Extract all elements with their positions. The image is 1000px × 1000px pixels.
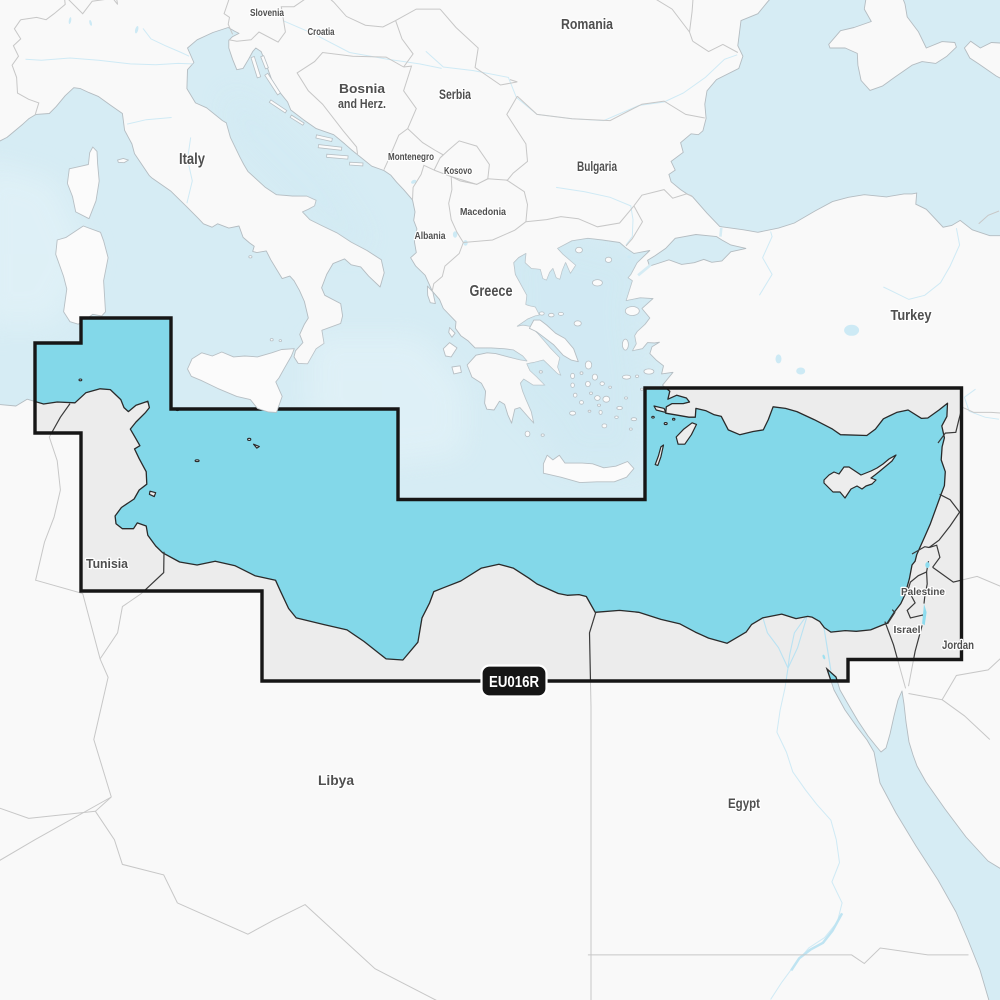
svg-text:Slovenia: Slovenia <box>250 8 284 19</box>
svg-text:Albania: Albania <box>415 230 446 242</box>
svg-text:Egypt: Egypt <box>728 796 760 811</box>
svg-text:and Herz.: and Herz. <box>338 96 386 111</box>
svg-text:Israel: Israel <box>894 624 921 636</box>
svg-text:Montenegro: Montenegro <box>388 152 434 163</box>
svg-text:Macedonia: Macedonia <box>460 206 506 218</box>
svg-text:Romania: Romania <box>561 17 614 33</box>
svg-text:Libya: Libya <box>318 773 354 788</box>
svg-text:Bulgaria: Bulgaria <box>577 159 617 174</box>
svg-text:Turkey: Turkey <box>891 307 933 324</box>
svg-text:Palestine: Palestine <box>901 586 945 598</box>
svg-text:Serbia: Serbia <box>439 87 471 102</box>
svg-text:Italy: Italy <box>179 151 205 168</box>
svg-text:Tunisia: Tunisia <box>86 557 129 571</box>
svg-text:EU016R: EU016R <box>489 674 539 691</box>
svg-text:Croatia: Croatia <box>308 27 335 38</box>
svg-text:Jordan: Jordan <box>942 640 974 652</box>
svg-text:Bosnia: Bosnia <box>339 81 386 96</box>
svg-text:Kosovo: Kosovo <box>444 166 472 177</box>
svg-text:Greece: Greece <box>470 283 513 300</box>
